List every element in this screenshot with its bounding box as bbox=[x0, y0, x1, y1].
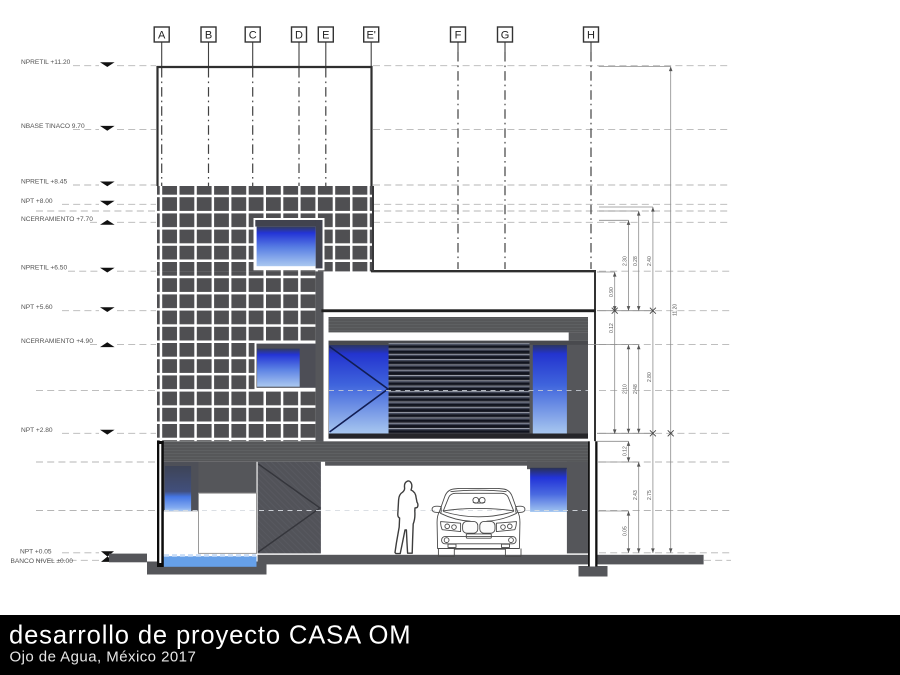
svg-text:0.05: 0.05 bbox=[623, 526, 629, 536]
svg-text:NCERRAMIENTO +7.70: NCERRAMIENTO +7.70 bbox=[21, 216, 93, 223]
svg-text:0.28: 0.28 bbox=[633, 256, 639, 266]
svg-text:NPRETIL +6.50: NPRETIL +6.50 bbox=[21, 265, 67, 272]
svg-text:D: D bbox=[295, 30, 303, 42]
svg-text:NCERRAMIENTO +4.90: NCERRAMIENTO +4.90 bbox=[21, 338, 93, 345]
svg-text:B: B bbox=[205, 30, 212, 42]
svg-text:BANCO NIVEL ±0.00: BANCO NIVEL ±0.00 bbox=[11, 558, 74, 565]
svg-text:desarrollo de proyecto CASA OM: desarrollo de proyecto CASA OM bbox=[9, 621, 411, 649]
svg-text:0.12: 0.12 bbox=[609, 323, 615, 333]
svg-text:2.10: 2.10 bbox=[623, 384, 629, 394]
svg-text:2.48: 2.48 bbox=[633, 384, 639, 394]
svg-text:2.43: 2.43 bbox=[633, 490, 639, 500]
svg-text:NBASE TINACO 9.70: NBASE TINACO 9.70 bbox=[21, 123, 85, 130]
svg-text:NPT +2.80: NPT +2.80 bbox=[21, 427, 53, 434]
svg-text:11.20: 11.20 bbox=[672, 304, 678, 316]
svg-text:NPT +0.05: NPT +0.05 bbox=[20, 548, 52, 555]
svg-text:2.30: 2.30 bbox=[623, 256, 629, 266]
svg-text:H: H bbox=[587, 30, 595, 42]
svg-text:E: E bbox=[322, 30, 329, 42]
svg-text:G: G bbox=[501, 30, 510, 42]
svg-text:2.80: 2.80 bbox=[647, 372, 653, 382]
svg-text:NPRETIL +8.45: NPRETIL +8.45 bbox=[21, 179, 67, 186]
svg-text:NPT +8.00: NPT +8.00 bbox=[21, 198, 53, 205]
svg-text:NPT +5.60: NPT +5.60 bbox=[21, 304, 53, 311]
svg-text:A: A bbox=[158, 30, 166, 42]
svg-text:C: C bbox=[249, 30, 257, 42]
svg-text:0.12: 0.12 bbox=[623, 446, 629, 456]
svg-text:2.40: 2.40 bbox=[647, 256, 653, 266]
svg-text:2.75: 2.75 bbox=[647, 490, 653, 500]
svg-text:0.90: 0.90 bbox=[609, 287, 615, 297]
svg-text:F: F bbox=[455, 30, 462, 42]
svg-text:Ojo de Agua, México 2017: Ojo de Agua, México 2017 bbox=[10, 648, 197, 665]
svg-text:E': E' bbox=[366, 30, 375, 42]
svg-text:NPRETIL +11.20: NPRETIL +11.20 bbox=[21, 59, 71, 66]
